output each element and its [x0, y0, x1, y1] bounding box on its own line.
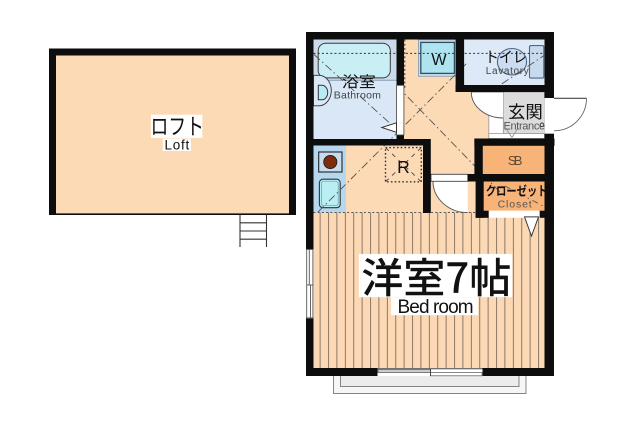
svg-text:W: W — [432, 52, 448, 69]
svg-text:Bed room: Bed room — [398, 297, 474, 318]
svg-text:Bathroom: Bathroom — [334, 89, 381, 101]
svg-text:Lavatory: Lavatory — [486, 66, 529, 77]
svg-text:SB: SB — [508, 153, 523, 168]
svg-text:R: R — [397, 157, 410, 177]
svg-text:Entrance: Entrance — [504, 121, 546, 133]
svg-text:Closet: Closet — [498, 199, 532, 211]
svg-text:Loft: Loft — [165, 137, 190, 152]
